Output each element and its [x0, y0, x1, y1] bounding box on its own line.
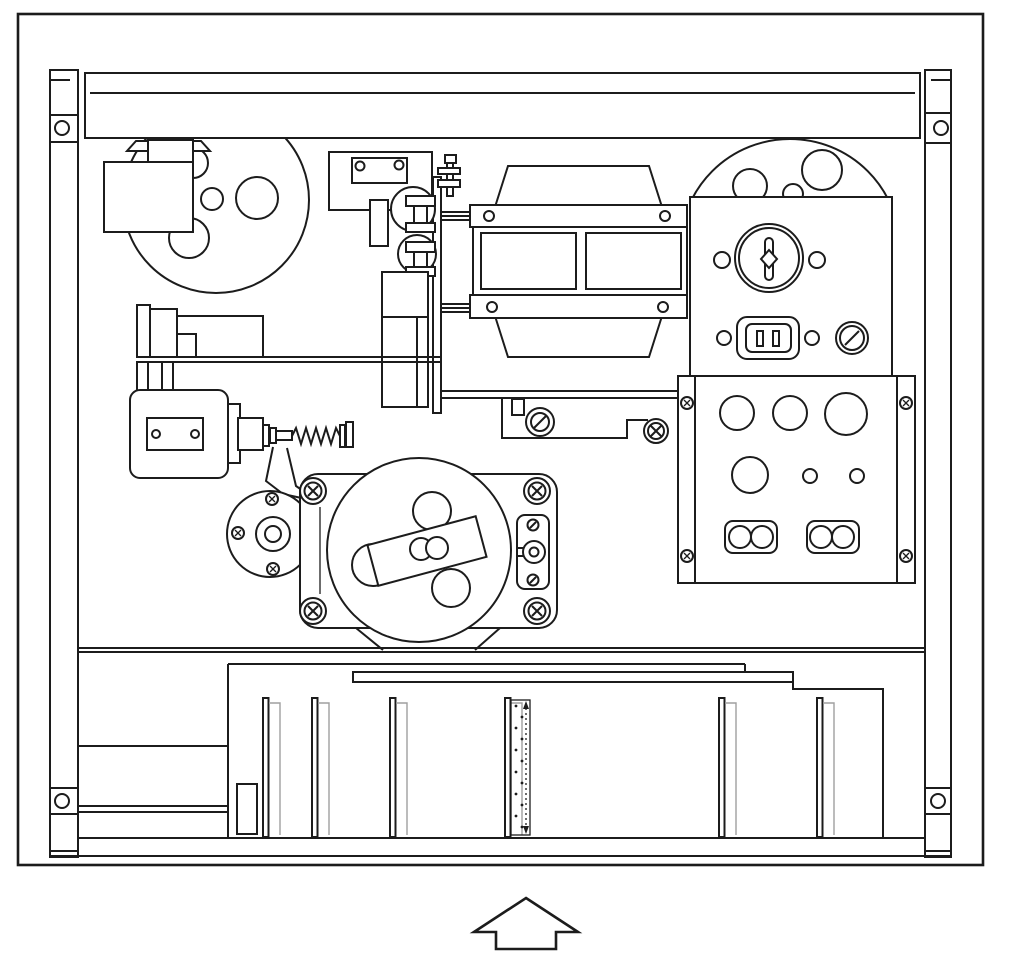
stipple-dot [515, 771, 518, 774]
circuit-card-edge [263, 698, 269, 837]
stepped-bracket [137, 305, 263, 357]
circuit-card-edge [312, 698, 318, 837]
stipple-dot [521, 760, 524, 763]
return-spring [292, 422, 353, 447]
circuit-card-edge [390, 698, 396, 837]
pulley-screw [267, 563, 279, 575]
stippled-card [511, 700, 530, 835]
motor-switch-bracket [517, 515, 549, 589]
fuse-holder [735, 224, 803, 292]
card-shadow [396, 703, 407, 835]
clamp-bar [470, 295, 687, 318]
card-cage [78, 664, 925, 838]
stipple-dot [521, 782, 524, 785]
coil-winding [495, 166, 662, 207]
circuit-card-edge [719, 698, 725, 837]
plate-screw [300, 478, 326, 504]
diagram-page [0, 0, 1024, 968]
coil-winding [495, 316, 662, 357]
connecting-rods [441, 212, 471, 312]
power-inlet [737, 317, 799, 359]
pulley-screw [266, 493, 278, 505]
card-shadow [725, 703, 736, 835]
stipple-dot [521, 804, 524, 807]
stipple-dot [515, 793, 518, 796]
plate-screw [524, 598, 550, 624]
lower-cross-member [441, 391, 677, 398]
connector-block [807, 521, 859, 553]
terminal-panel [678, 376, 915, 583]
transformer [470, 166, 687, 357]
cage-spacer [237, 784, 257, 834]
circuit-card-edge [817, 698, 823, 837]
clamp-bar [470, 205, 687, 227]
pulley-screw [232, 527, 244, 539]
right-rail [925, 70, 951, 857]
circuit-cards [263, 698, 834, 837]
left-rail [50, 70, 78, 857]
solenoid [130, 390, 292, 478]
circuit-card-edge [505, 698, 511, 837]
ground-screw [836, 322, 868, 354]
core-window [481, 233, 576, 289]
front-crossbar [85, 73, 920, 138]
core-window [586, 233, 681, 289]
stipple-dot [515, 749, 518, 752]
lamp-stem [512, 399, 524, 415]
fuse-panel [690, 197, 892, 380]
chassis-top-view-diagram [0, 0, 1024, 968]
motion-arrowhead-down [523, 826, 529, 834]
stipple-dot [515, 727, 518, 730]
motion-arrowhead-up [523, 701, 529, 709]
stipple-dot [521, 716, 524, 719]
flywheel-motor [300, 458, 557, 650]
stipple-dot [521, 826, 524, 829]
card-shadow [823, 703, 834, 835]
connector-block [725, 521, 777, 553]
plate-screw [524, 478, 550, 504]
plunger [238, 418, 263, 450]
stipple-dot [521, 738, 524, 741]
insert-direction-arrow [474, 898, 578, 949]
card-shadow [318, 703, 329, 835]
plate-support [475, 628, 500, 650]
stipple-dot [515, 705, 518, 708]
guide-slat [353, 672, 793, 682]
stipple-dot [515, 815, 518, 818]
roller-clamps [391, 187, 436, 276]
plate-screw [300, 598, 326, 624]
lamp-bracket [502, 398, 668, 443]
card-shadow [269, 703, 280, 835]
guide-post [370, 200, 388, 246]
drive-block [382, 272, 428, 407]
chassis-divider [78, 648, 925, 652]
